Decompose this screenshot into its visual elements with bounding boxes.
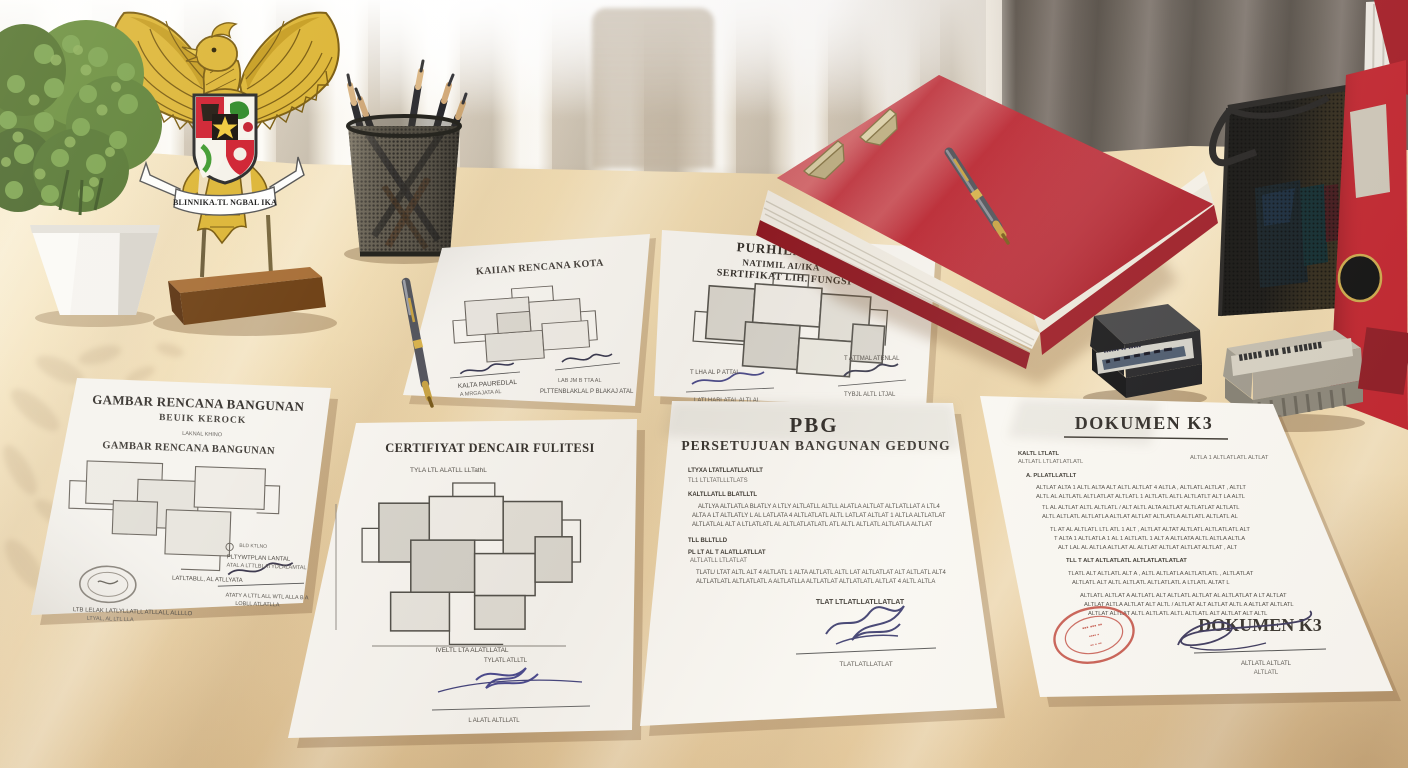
svg-text:ALTLYA ALTLATLA BLATLY A LTLY: ALTLYA ALTLATLA BLATLY A LTLY ALTLATLL A… bbox=[698, 504, 940, 510]
svg-text:PLTTENBLAKLAL P BLAKAJ ATAL: PLTTENBLAKLAL P BLAKAJ ATAL bbox=[540, 389, 634, 395]
svg-text:ALT LAL AL ALTLA ALTLAT AL AL: ALT LAL AL ALTLA ALTLAT AL ALTLAT ALTLAT… bbox=[1058, 545, 1238, 551]
svg-text:ALTLATLATL ALTLATLATL A ALTL: ALTLATLATL ALTLATLATL A ALTLATLLA ALTLAT… bbox=[696, 579, 935, 585]
svg-text:ALTLATLAL ALT A LTLATLATL AL A: ALTLATLAL ALT A LTLATLATL AL ALTLATLATLA… bbox=[692, 522, 932, 528]
svg-text:T LHA AL P ATTAL: T LHA AL P ATTAL bbox=[690, 370, 740, 376]
svg-text:ALTLA 1 ALTLATLATL ALTLAT: ALTLA 1 ALTLATLATL ALTLAT bbox=[1190, 455, 1269, 461]
svg-text:TYLA LTL ALATLL LLTathL: TYLA LTL ALATLL LLTathL bbox=[410, 467, 487, 474]
svg-text:LTYXA LTATLLATLLATLLT: LTYXA LTATLLATLLATLLT bbox=[688, 468, 763, 474]
svg-text:ALTLATLL LTLATLAT: ALTLATLL LTLATLAT bbox=[690, 558, 747, 564]
svg-text:L ALATL ALTLLATL: L ALATL ALTLLATL bbox=[468, 718, 520, 724]
svg-text:KALTL LTLATL: KALTL LTLATL bbox=[1018, 451, 1060, 457]
svg-text:TLAT LTLATLLATLLATLAT: TLAT LTLATLLATLLATLAT bbox=[816, 599, 905, 606]
svg-text:IVELTL LTA ALATLLATAL: IVELTL LTA ALATLLATAL bbox=[435, 647, 508, 654]
svg-text:ALTLAT ALTLA ALTLAT ALT ALTL: ALTLAT ALTLA ALTLAT ALT ALTL / ALTLAT AL… bbox=[1084, 602, 1294, 608]
svg-text:TLATLATLLATLAT: TLATLATLLATLAT bbox=[839, 661, 892, 668]
svg-text:KALTLLATLL BLATLLTL: KALTLLATLL BLATLLTL bbox=[688, 492, 757, 498]
svg-text:PL LT AL T ALATLLATLLAT: PL LT AL T ALATLLATLLAT bbox=[688, 550, 766, 556]
svg-text:TYLATL ATLLTL: TYLATL ATLLTL bbox=[484, 658, 528, 664]
svg-text:ALTA A LT ALTLATLY L AL LATLA: ALTA A LT ALTLATLY L AL LATLATA 4 ALTLAT… bbox=[692, 513, 946, 519]
svg-text:TL1 LTLTATLLLTLATS: TL1 LTLTATLLLTLATS bbox=[688, 478, 748, 484]
svg-text:ALTL AL ALTLATL ALTLATLAT AL: ALTL AL ALTLATL ALTLATLAT ALTLATL 1 ALTL… bbox=[1036, 494, 1246, 500]
svg-text:ALTL ALTLATL ALTLATLA ALTLAT: ALTL ALTLATL ALTLATLA ALTLAT ALTLAT ALTL… bbox=[1042, 514, 1239, 520]
svg-text:DOKUMEN K3: DOKUMEN K3 bbox=[1198, 615, 1322, 635]
svg-text:PBG: PBG bbox=[789, 413, 838, 437]
svg-text:DOKUMEN K3: DOKUMEN K3 bbox=[1075, 413, 1214, 433]
svg-text:LAB JM B TTA AL: LAB JM B TTA AL bbox=[558, 378, 602, 384]
svg-text:PERSETUJUAN BANGUNAN GEDUNG: PERSETUJUAN BANGUNAN GEDUNG bbox=[681, 438, 950, 453]
svg-text:ALTLATL LTLATLATLATL: ALTLATL LTLATLATLATL bbox=[1018, 459, 1084, 465]
svg-text:BLD KTLNO: BLD KTLNO bbox=[239, 543, 267, 550]
svg-text:T ALTA 1 ALTLATLA 1 AL 1 ALTL: T ALTA 1 ALTLATLA 1 AL 1 ALTLATL 1 ALT A… bbox=[1054, 536, 1245, 542]
svg-text:ALTLATL ALTLATL: ALTLATL ALTLATL bbox=[1241, 661, 1292, 667]
svg-text:ALTLATL ALT ALTL ALTLATL ALTLA: ALTLATL ALT ALTL ALTLATL ALTLATLATL A LT… bbox=[1072, 580, 1230, 586]
svg-text:ALTLATL ALTLAT A ALTLATL ALT: ALTLATL ALTLAT A ALTLATL ALT ALTLATL ALT… bbox=[1080, 593, 1287, 599]
svg-text:A. PLLATLLATLLT: A. PLLATLLATLLT bbox=[1026, 473, 1077, 479]
svg-text:TLATL/ LTAT ALTL ALT 4 ALTLAT: TLATL/ LTAT ALTL ALT 4 ALTLATL 1 ALTA AL… bbox=[696, 570, 946, 576]
svg-text:TL AL ALTLAT ALTL ALTLATL /: TL AL ALTLAT ALTL ALTLATL / ALT ALTL ALT… bbox=[1042, 505, 1240, 511]
svg-text:TLL BLLTLLD: TLL BLLTLLD bbox=[688, 538, 728, 544]
svg-text:TLATL ALT ALTLATL ALT A , ALTL: TLATL ALT ALTLATL ALT A , ALTL ALTLATLA … bbox=[1068, 571, 1254, 577]
svg-text:TL AT AL ALTLATL LTL ATL 1 ALT: TL AT AL ALTLATL LTL ATL 1 ALT , ALTLAT … bbox=[1050, 527, 1250, 533]
svg-text:ALTLATL: ALTLATL bbox=[1254, 670, 1279, 676]
svg-text:TLL T ALT ALTLATLATL ALTLATLAT: TLL T ALT ALTLATLATL ALTLATLATLATLAT bbox=[1066, 558, 1187, 564]
svg-text:ALTLAT ALTA 1 ALTL ALTA ALT: ALTLAT ALTA 1 ALTL ALTA ALT ALTL ALTLAT … bbox=[1036, 485, 1246, 491]
svg-text:CERTIFIYAT DENCAIR FULITESI: CERTIFIYAT DENCAIR FULITESI bbox=[385, 441, 595, 455]
